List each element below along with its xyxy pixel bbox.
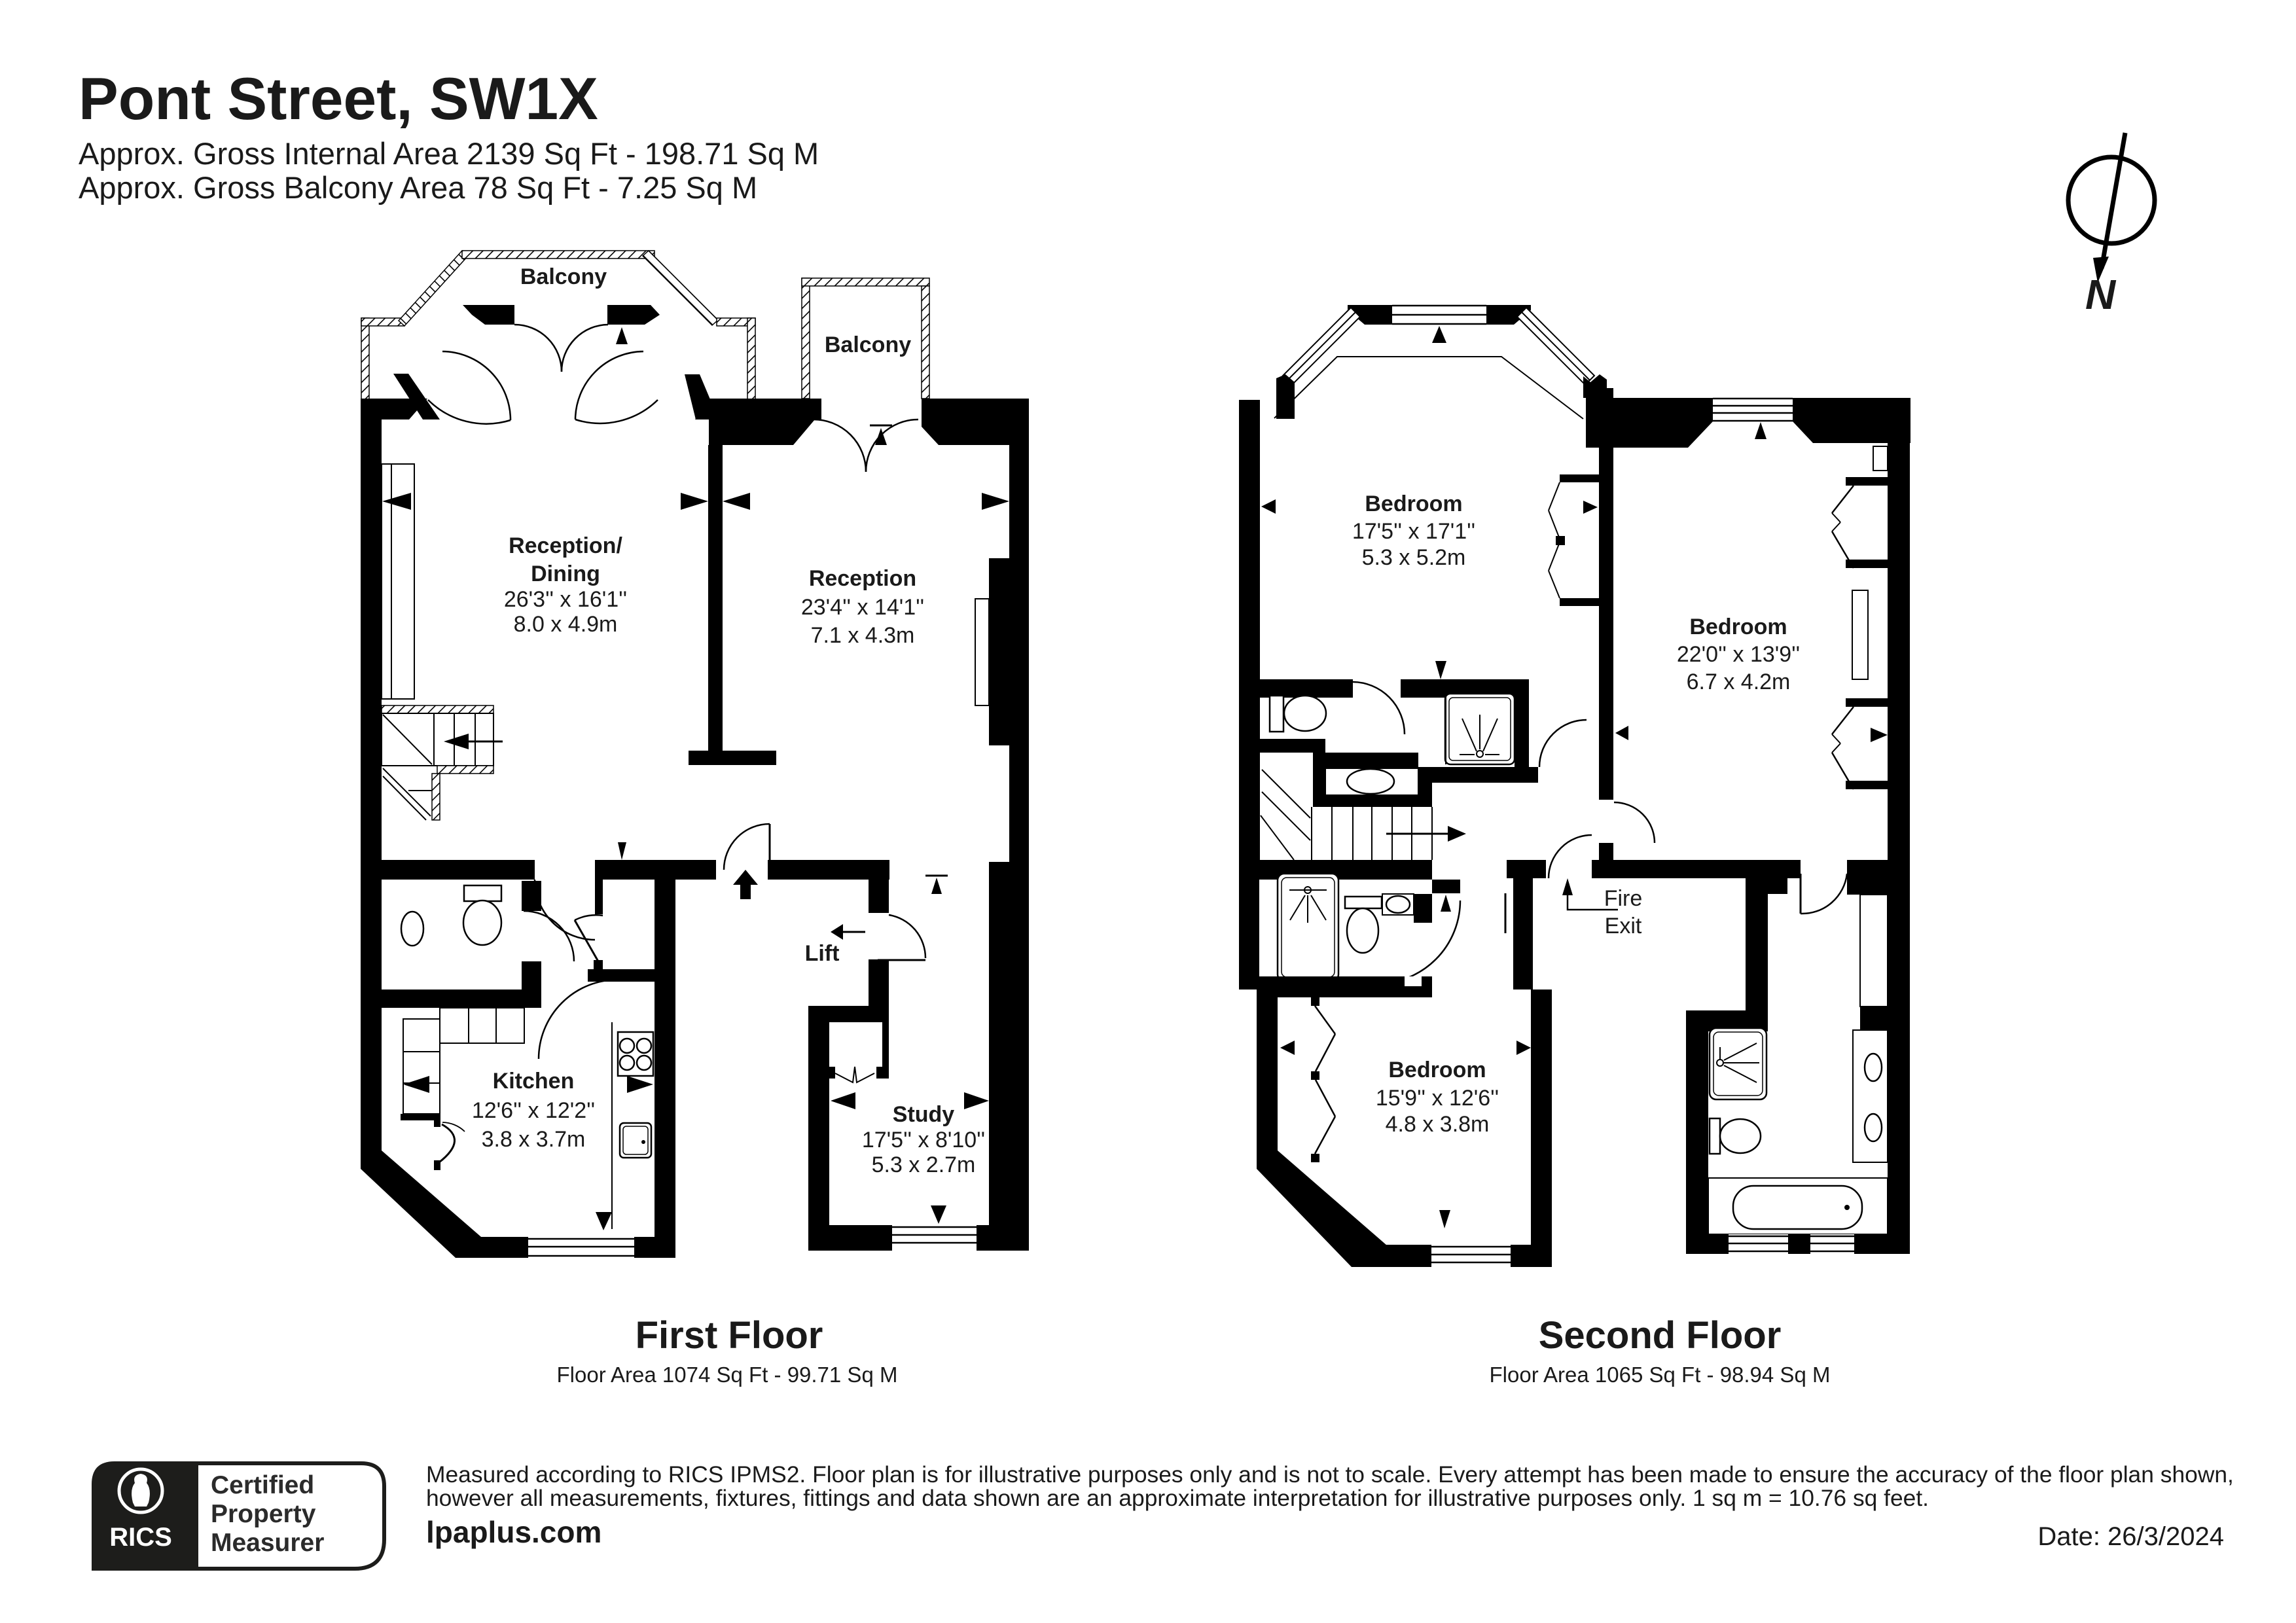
svg-text:Pont Street, SW1X: Pont Street, SW1X <box>79 66 598 132</box>
svg-text:Study: Study <box>893 1102 955 1127</box>
svg-text:Floor Area 1065 Sq Ft - 98.94: Floor Area 1065 Sq Ft - 98.94 Sq M <box>1490 1363 1831 1387</box>
svg-text:Bedroom: Bedroom <box>1689 615 1787 639</box>
svg-text:Property: Property <box>211 1500 316 1528</box>
svg-text:Reception: Reception <box>809 566 916 591</box>
svg-text:Balcony: Balcony <box>520 264 607 289</box>
svg-text:Certified: Certified <box>211 1471 314 1499</box>
svg-text:RICS: RICS <box>109 1523 172 1552</box>
svg-text:lpaplus.com: lpaplus.com <box>426 1515 601 1549</box>
svg-text:Exit: Exit <box>1605 914 1642 938</box>
svg-text:7.1 x 4.3m: 7.1 x 4.3m <box>811 623 915 648</box>
svg-text:15'9'' x 12'6'': 15'9'' x 12'6'' <box>1376 1086 1499 1111</box>
svg-text:Reception/: Reception/ <box>509 533 622 558</box>
svg-text:Approx. Gross Internal Area 21: Approx. Gross Internal Area 2139 Sq Ft -… <box>79 136 819 171</box>
svg-text:23'4'' x 14'1'': 23'4'' x 14'1'' <box>801 595 924 620</box>
svg-text:Measured according to RICS IPM: Measured according to RICS IPMS2. Floor … <box>426 1461 2234 1488</box>
svg-text:6.7 x 4.2m: 6.7 x 4.2m <box>1687 669 1791 694</box>
svg-text:Lift: Lift <box>805 941 840 966</box>
svg-text:26'3'' x 16'1'': 26'3'' x 16'1'' <box>504 587 627 612</box>
svg-text:Floor Area 1074 Sq Ft - 99.71: Floor Area 1074 Sq Ft - 99.71 Sq M <box>557 1363 898 1387</box>
svg-text:12'6'' x 12'2'': 12'6'' x 12'2'' <box>472 1098 595 1123</box>
svg-text:Kitchen: Kitchen <box>493 1069 575 1094</box>
svg-text:Measurer: Measurer <box>211 1529 324 1557</box>
svg-text:however all measurements, fixt: however all measurements, fixtures, fitt… <box>426 1485 1929 1511</box>
svg-text:N: N <box>2085 271 2117 318</box>
svg-text:17'5'' x 17'1'': 17'5'' x 17'1'' <box>1352 519 1475 544</box>
svg-text:8.0 x 4.9m: 8.0 x 4.9m <box>514 612 618 637</box>
svg-text:4.8 x 3.8m: 4.8 x 3.8m <box>1386 1112 1490 1137</box>
svg-text:Approx. Gross Balcony Area 78: Approx. Gross Balcony Area 78 Sq Ft - 7.… <box>79 170 757 205</box>
svg-text:22'0'' x 13'9'': 22'0'' x 13'9'' <box>1677 642 1800 667</box>
svg-text:5.3 x 5.2m: 5.3 x 5.2m <box>1362 545 1466 570</box>
svg-text:Date: 26/3/2024: Date: 26/3/2024 <box>2037 1522 2224 1551</box>
svg-text:Bedroom: Bedroom <box>1365 491 1462 516</box>
svg-text:Fire: Fire <box>1604 886 1643 911</box>
svg-text:Balcony: Balcony <box>825 332 911 357</box>
svg-text:First Floor: First Floor <box>636 1314 823 1357</box>
svg-text:Second Floor: Second Floor <box>1539 1314 1782 1357</box>
svg-text:Bedroom: Bedroom <box>1388 1058 1486 1082</box>
svg-text:3.8 x 3.7m: 3.8 x 3.7m <box>482 1127 586 1152</box>
svg-text:Dining: Dining <box>531 562 600 586</box>
svg-text:5.3 x 2.7m: 5.3 x 2.7m <box>872 1152 976 1177</box>
svg-text:17'5'' x 8'10'': 17'5'' x 8'10'' <box>862 1128 985 1152</box>
